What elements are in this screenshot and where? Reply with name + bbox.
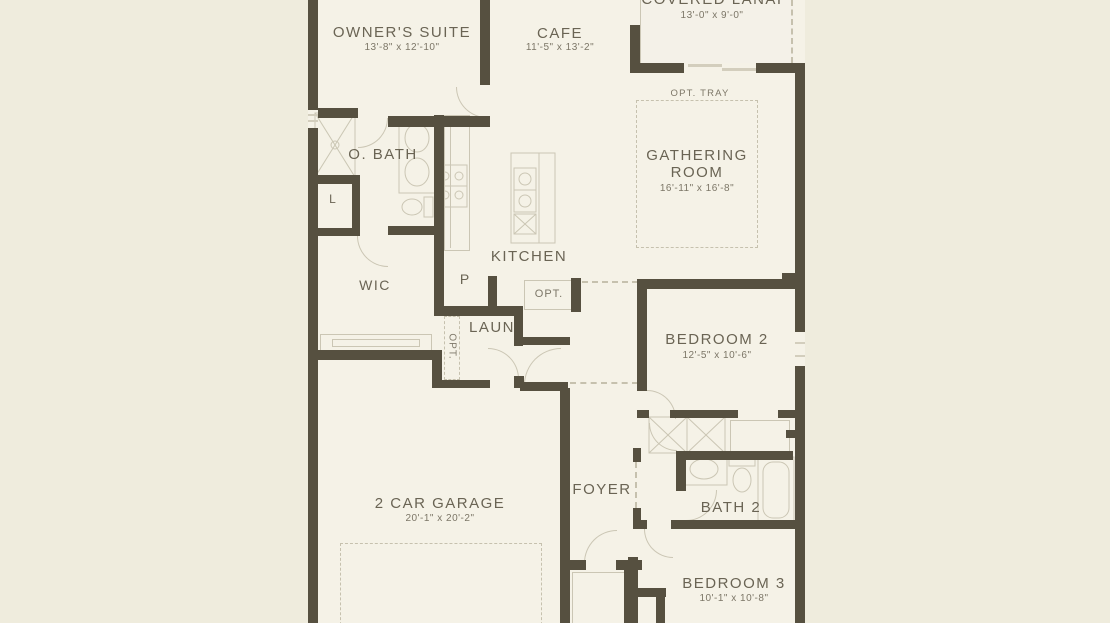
bedroom2-dims: 12'-5" x 10'-6" xyxy=(682,350,751,361)
wall-segment xyxy=(637,279,647,391)
opt-tray-label: OPT. TRAY xyxy=(670,88,729,99)
bath2-toilet-fixture xyxy=(728,455,756,493)
pantry-label: P xyxy=(460,271,470,287)
laundry-label: LAUN xyxy=(469,319,515,336)
window xyxy=(308,114,318,116)
linen-closet-label: L xyxy=(329,192,337,206)
kitchen-label: KITCHEN xyxy=(491,248,567,265)
wall-segment xyxy=(633,448,641,462)
sliding-door xyxy=(688,64,722,67)
garage-dashed-outline xyxy=(340,543,542,623)
bath2-label: BATH 2 xyxy=(701,499,761,516)
bedroom3-dims: 10'-1" x 10'-8" xyxy=(699,593,768,604)
lanai-left-edge xyxy=(640,0,641,63)
wall-segment xyxy=(520,337,570,345)
laundry-opt-label: OPT. xyxy=(447,333,458,359)
wall-segment xyxy=(388,226,440,235)
wall-segment xyxy=(308,0,318,110)
kitchen-opt-label: OPT. xyxy=(535,288,563,300)
wall-segment xyxy=(308,350,442,360)
window xyxy=(795,355,805,357)
wall-segment xyxy=(637,279,805,289)
wall-segment xyxy=(786,430,795,438)
bath2-tub-fixture xyxy=(757,456,795,524)
gathering-room-label-line1: GATHERING xyxy=(646,147,748,164)
bedroom3-label: BEDROOM 3 xyxy=(682,575,786,592)
wall-segment xyxy=(560,560,586,570)
wall-segment xyxy=(630,63,684,73)
floor-plan: OWNER'S SUITE 13'-8" x 12'-10" CAFE 11'-… xyxy=(0,0,1110,623)
cafe-dims: 11'-5" x 13'-2" xyxy=(526,42,594,53)
wall-segment xyxy=(434,115,444,316)
ceiling-break-hall xyxy=(570,382,638,384)
shower-fixture xyxy=(314,112,356,178)
wall-segment xyxy=(434,306,520,316)
wall-segment xyxy=(656,597,665,623)
wall-segment xyxy=(632,588,666,597)
lanai-screen-edge xyxy=(791,0,793,63)
wall-segment xyxy=(795,366,805,623)
sliding-door xyxy=(722,68,756,71)
garage-dims: 20'-1" x 20'-2" xyxy=(405,513,474,524)
owners-suite-dims: 13'-8" x 12'-10" xyxy=(364,42,439,53)
owners-bath-toilet-fixture xyxy=(400,194,434,220)
wall-segment xyxy=(633,520,647,529)
wall-segment xyxy=(432,380,490,388)
wall-segment xyxy=(318,228,354,236)
wall-segment xyxy=(560,570,570,623)
wall-segment xyxy=(676,451,686,491)
wall-segment xyxy=(637,410,649,418)
wall-segment xyxy=(676,451,793,460)
window xyxy=(308,120,318,122)
wic-rod xyxy=(332,339,420,347)
bedroom2-label: BEDROOM 2 xyxy=(665,331,769,348)
cafe-label: CAFE xyxy=(537,25,583,42)
linen-shelf xyxy=(730,420,790,453)
wall-segment xyxy=(571,278,581,312)
wall-segment xyxy=(795,73,805,332)
wall-segment xyxy=(318,108,358,118)
ceiling-break-gathering xyxy=(582,281,638,283)
wall-segment xyxy=(778,410,795,418)
entry-porch xyxy=(572,572,626,623)
owners-suite-label: OWNER'S SUITE xyxy=(333,24,471,41)
window xyxy=(795,342,805,344)
wall-segment xyxy=(756,63,805,73)
wall-segment xyxy=(488,276,497,308)
wall-segment xyxy=(308,128,318,623)
kitchen-island-fixture xyxy=(510,152,556,244)
wic-label: WIC xyxy=(359,277,391,293)
wall-segment xyxy=(560,388,570,568)
garage-label: 2 CAR GARAGE xyxy=(375,495,506,512)
wall-segment xyxy=(782,273,795,282)
gathering-room-label-line2: ROOM xyxy=(671,164,724,181)
wall-segment xyxy=(670,410,738,418)
foyer-label: FOYER xyxy=(572,481,631,498)
covered-lanai-label: COVERED LANAI xyxy=(641,0,782,8)
owners-bath-label: O. BATH xyxy=(348,146,417,163)
wall-segment xyxy=(671,520,795,529)
opt-door-hall xyxy=(635,462,637,508)
gathering-room-dims: 16'-11" x 16'-8" xyxy=(660,183,734,194)
wall-segment xyxy=(480,0,490,85)
covered-lanai-dims: 13'-0" x 9'-0" xyxy=(681,10,744,21)
house-floor xyxy=(308,0,805,623)
